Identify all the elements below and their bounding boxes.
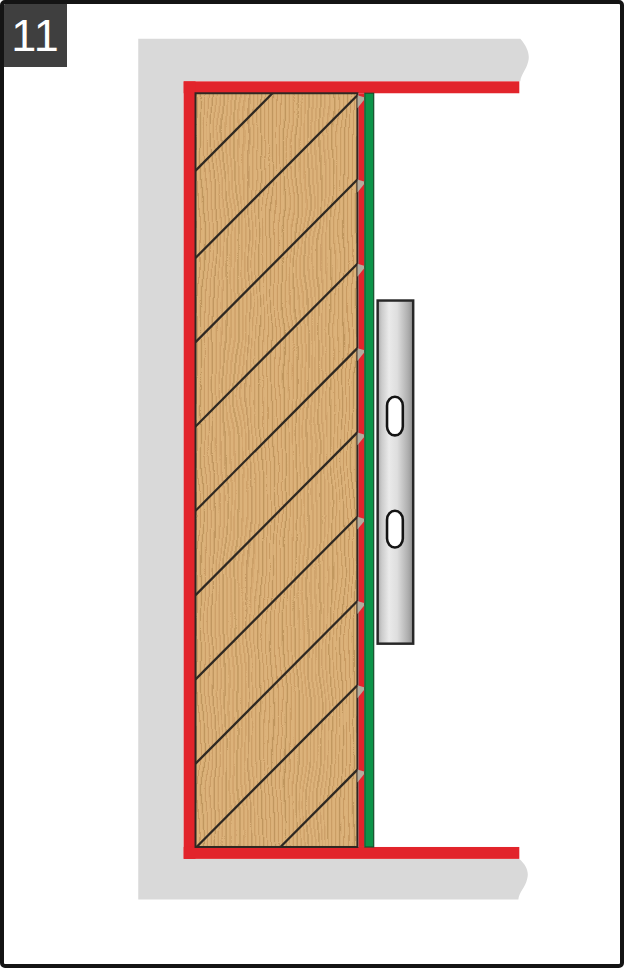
sealant-bottom (184, 847, 520, 859)
step-badge: 11 (4, 4, 67, 67)
mounting-rail (378, 301, 414, 644)
instruction-page: 11 (0, 0, 624, 968)
sealing-tape (365, 93, 374, 847)
rail-slot-upper (387, 397, 403, 436)
installation-diagram (4, 4, 620, 964)
sealant-top (184, 81, 520, 93)
sealant-right-strip (358, 93, 364, 847)
step-number: 11 (11, 13, 60, 58)
sealant-left (184, 81, 196, 859)
rail-slot-lower (387, 511, 403, 548)
